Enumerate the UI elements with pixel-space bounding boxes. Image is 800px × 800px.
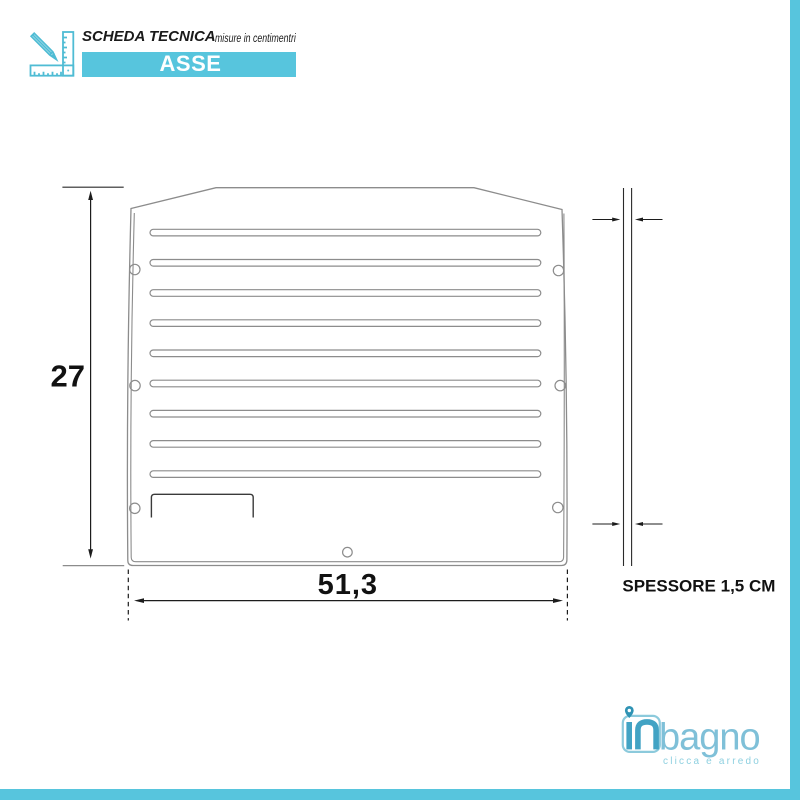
svg-text:SPESSORE 1,5 CM: SPESSORE 1,5 CM — [622, 576, 775, 595]
svg-text:27: 27 — [50, 358, 84, 393]
svg-text:51,3: 51,3 — [318, 569, 378, 601]
svg-text:clicca e arredo: clicca e arredo — [663, 756, 761, 767]
svg-text:bagno: bagno — [659, 716, 760, 758]
